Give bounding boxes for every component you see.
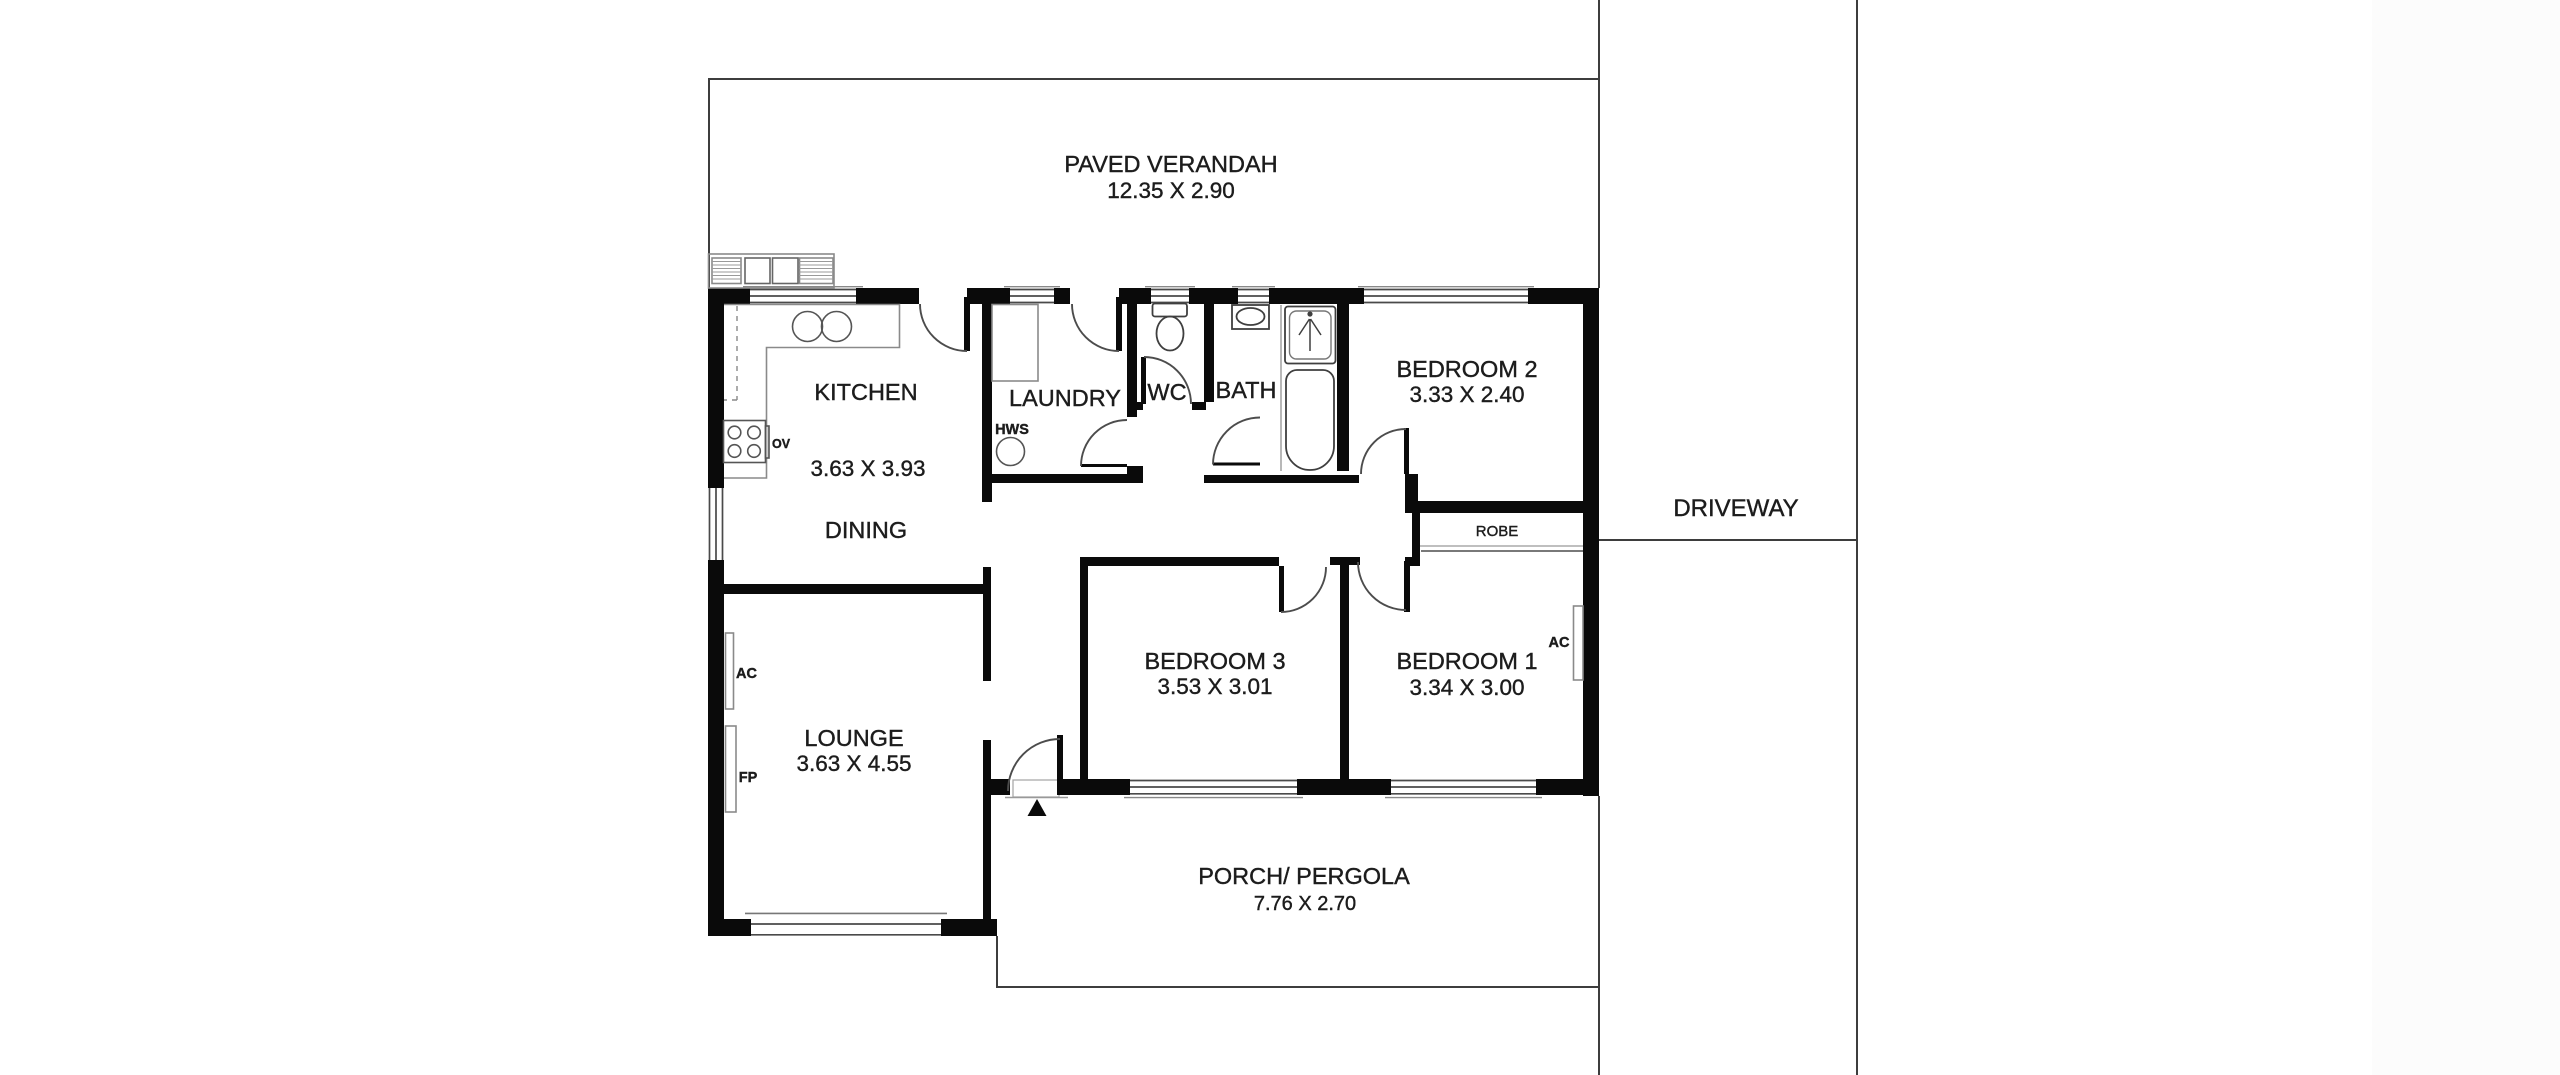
svg-text:3.34 X 3.00: 3.34 X 3.00 — [1409, 675, 1524, 700]
svg-text:AC: AC — [736, 666, 757, 682]
svg-text:PAVED VERANDAH: PAVED VERANDAH — [1064, 151, 1277, 177]
svg-text:3.33 X 2.40: 3.33 X 2.40 — [1409, 382, 1524, 407]
svg-text:BEDROOM 1: BEDROOM 1 — [1396, 648, 1537, 674]
svg-text:3.53 X 3.01: 3.53 X 3.01 — [1157, 674, 1272, 699]
svg-text:OV: OV — [772, 437, 791, 451]
svg-text:WC: WC — [1147, 379, 1186, 405]
svg-text:PORCH/ PERGOLA: PORCH/ PERGOLA — [1198, 863, 1410, 889]
svg-text:HWS: HWS — [995, 422, 1029, 438]
svg-text:BEDROOM 2: BEDROOM 2 — [1396, 356, 1537, 382]
svg-text:3.63 X 3.93: 3.63 X 3.93 — [810, 456, 925, 481]
svg-text:BEDROOM 3: BEDROOM 3 — [1144, 648, 1285, 674]
svg-text:KITCHEN: KITCHEN — [814, 379, 917, 405]
svg-text:7.76 X 2.70: 7.76 X 2.70 — [1254, 893, 1356, 915]
svg-text:3.63 X 4.55: 3.63 X 4.55 — [796, 751, 911, 776]
svg-text:12.35 X 2.90: 12.35 X 2.90 — [1107, 178, 1235, 203]
svg-text:DRIVEWAY: DRIVEWAY — [1673, 495, 1798, 522]
svg-text:LOUNGE: LOUNGE — [804, 725, 903, 751]
svg-text:FP: FP — [739, 770, 758, 786]
svg-text:BATH: BATH — [1216, 377, 1277, 403]
svg-text:LAUNDRY: LAUNDRY — [1009, 385, 1121, 411]
svg-text:ROBE: ROBE — [1476, 523, 1519, 540]
svg-text:DINING: DINING — [825, 517, 907, 543]
svg-text:AC: AC — [1549, 635, 1570, 651]
